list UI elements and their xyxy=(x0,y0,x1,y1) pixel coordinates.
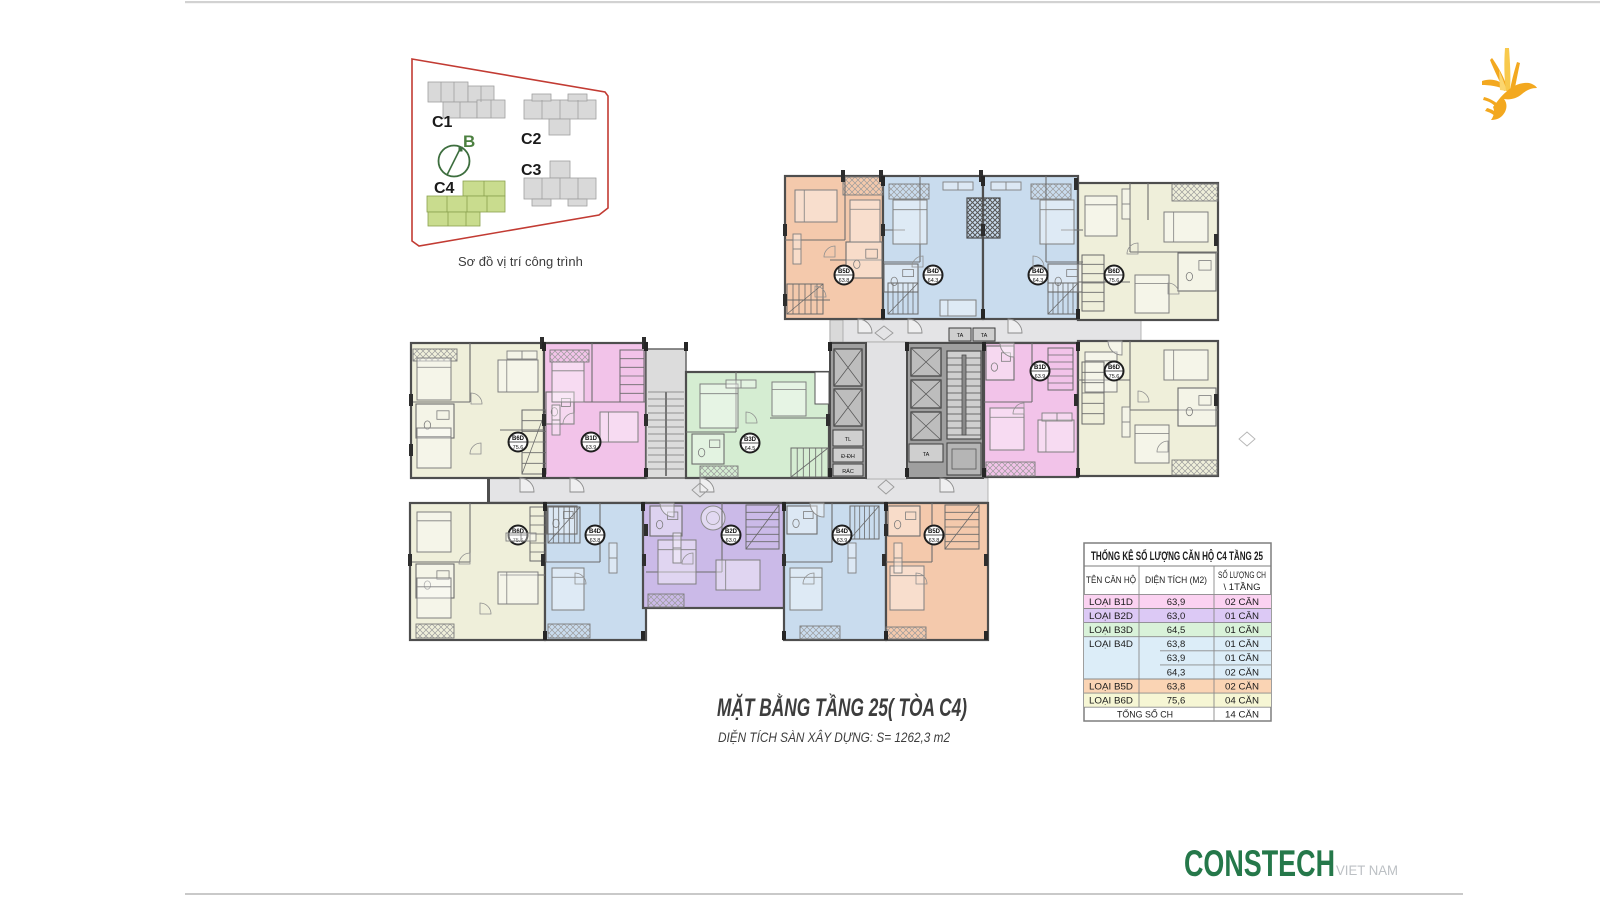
svg-text:64,5: 64,5 xyxy=(1167,625,1186,636)
svg-text:RÁC: RÁC xyxy=(842,468,854,475)
svg-text:B: B xyxy=(463,132,475,151)
svg-text:MẶT BẰNG TẦNG 25( TÒA C4): MẶT BẰNG TẦNG 25( TÒA C4) xyxy=(717,693,967,722)
svg-text:63.8: 63.8 xyxy=(839,278,850,284)
svg-text:SỐ LƯỢNG CH: SỐ LƯỢNG CH xyxy=(1218,569,1266,581)
svg-text:TỔNG SỐ CH: TỔNG SỐ CH xyxy=(1117,709,1173,721)
svg-text:75.6: 75.6 xyxy=(1109,278,1120,284)
svg-text:B4D: B4D xyxy=(836,529,849,535)
svg-text:TÊN CĂN HỘ: TÊN CĂN HỘ xyxy=(1086,575,1136,586)
svg-text:04 CĂN: 04 CĂN xyxy=(1225,696,1259,707)
svg-text:75.6: 75.6 xyxy=(513,445,524,451)
svg-text:02 CĂN: 02 CĂN xyxy=(1225,681,1259,692)
svg-text:B1D: B1D xyxy=(585,436,598,442)
svg-text:B6D: B6D xyxy=(1108,365,1121,371)
svg-text:LOẠI B4D: LOẠI B4D xyxy=(1089,639,1133,650)
svg-text:B2D: B2D xyxy=(725,529,738,535)
svg-text:DIỆN TÍCH (M2): DIỆN TÍCH (M2) xyxy=(1145,575,1207,586)
svg-text:C1: C1 xyxy=(432,114,453,131)
svg-text:01 CĂN: 01 CĂN xyxy=(1225,611,1259,622)
svg-text:02 CĂN: 02 CĂN xyxy=(1225,597,1259,608)
svg-text:B1D: B1D xyxy=(1034,365,1047,371)
svg-text:B4D: B4D xyxy=(589,529,602,535)
svg-text:B5D: B5D xyxy=(838,269,851,275)
svg-text:63,9: 63,9 xyxy=(1167,597,1186,608)
svg-text:02 CĂN: 02 CĂN xyxy=(1225,667,1259,678)
svg-text:TA: TA xyxy=(957,333,964,339)
svg-text:63.9: 63.9 xyxy=(837,538,848,544)
svg-text:64.3: 64.3 xyxy=(1033,278,1044,284)
svg-text:THỐNG KÊ SỐ LƯỢNG CĂN HỘ C4 TẦ: THỐNG KÊ SỐ LƯỢNG CĂN HỘ C4 TẦNG 25 xyxy=(1091,548,1263,563)
svg-text:01 CĂN: 01 CĂN xyxy=(1225,653,1259,664)
svg-text:63.8: 63.8 xyxy=(590,538,601,544)
svg-text:63.0: 63.0 xyxy=(726,538,737,544)
svg-text:Đ-ĐH: Đ-ĐH xyxy=(841,454,855,460)
svg-text:B5D: B5D xyxy=(928,529,941,535)
svg-text:B6D: B6D xyxy=(512,436,525,442)
svg-text:63.9: 63.9 xyxy=(586,445,597,451)
svg-text:LOẠI B3D: LOẠI B3D xyxy=(1089,625,1133,636)
svg-text:63,8: 63,8 xyxy=(1167,681,1186,692)
svg-text:CONSTECH: CONSTECH xyxy=(1184,843,1335,884)
svg-text:75,6: 75,6 xyxy=(1167,696,1186,707)
svg-text:C3: C3 xyxy=(521,162,542,179)
svg-text:B3D: B3D xyxy=(744,437,757,443)
svg-text:DIỆN TÍCH SÀN XÂY DỰNG: S= 126: DIỆN TÍCH SÀN XÂY DỰNG: S= 1262,3 m2 xyxy=(718,729,950,745)
svg-text:VIET NAM: VIET NAM xyxy=(1336,862,1398,878)
svg-text:63.8: 63.8 xyxy=(929,538,940,544)
svg-text:Sơ đồ vị trí công trình: Sơ đồ vị trí công trình xyxy=(458,254,583,269)
svg-text:01 CĂN: 01 CĂN xyxy=(1225,639,1259,650)
svg-text:14 CĂN: 14 CĂN xyxy=(1225,710,1259,721)
svg-text:64.3: 64.3 xyxy=(928,278,939,284)
svg-text:63,0: 63,0 xyxy=(1167,611,1186,622)
svg-text:63,8: 63,8 xyxy=(1167,639,1186,650)
svg-text:C2: C2 xyxy=(521,131,542,148)
svg-text:TA: TA xyxy=(981,333,988,339)
svg-text:\ 1TẦNG: \ 1TẦNG xyxy=(1224,582,1261,593)
svg-text:TL: TL xyxy=(845,437,851,443)
svg-text:LOẠI B6D: LOẠI B6D xyxy=(1089,696,1133,707)
svg-text:64.5: 64.5 xyxy=(745,446,756,452)
svg-text:63,9: 63,9 xyxy=(1167,653,1186,664)
svg-text:TA: TA xyxy=(923,452,930,458)
svg-text:B4D: B4D xyxy=(1032,269,1045,275)
svg-text:LOẠI B2D: LOẠI B2D xyxy=(1089,611,1133,622)
svg-text:63.9: 63.9 xyxy=(1035,374,1046,380)
svg-text:64,3: 64,3 xyxy=(1167,667,1186,678)
svg-text:C4: C4 xyxy=(434,180,455,197)
svg-text:B4D: B4D xyxy=(927,269,940,275)
svg-text:B6D: B6D xyxy=(1108,269,1121,275)
svg-text:LOẠI B1D: LOẠI B1D xyxy=(1089,597,1133,608)
svg-text:LOẠI B5D: LOẠI B5D xyxy=(1089,681,1133,692)
svg-text:01 CĂN: 01 CĂN xyxy=(1225,625,1259,636)
svg-text:75.6: 75.6 xyxy=(1109,374,1120,380)
